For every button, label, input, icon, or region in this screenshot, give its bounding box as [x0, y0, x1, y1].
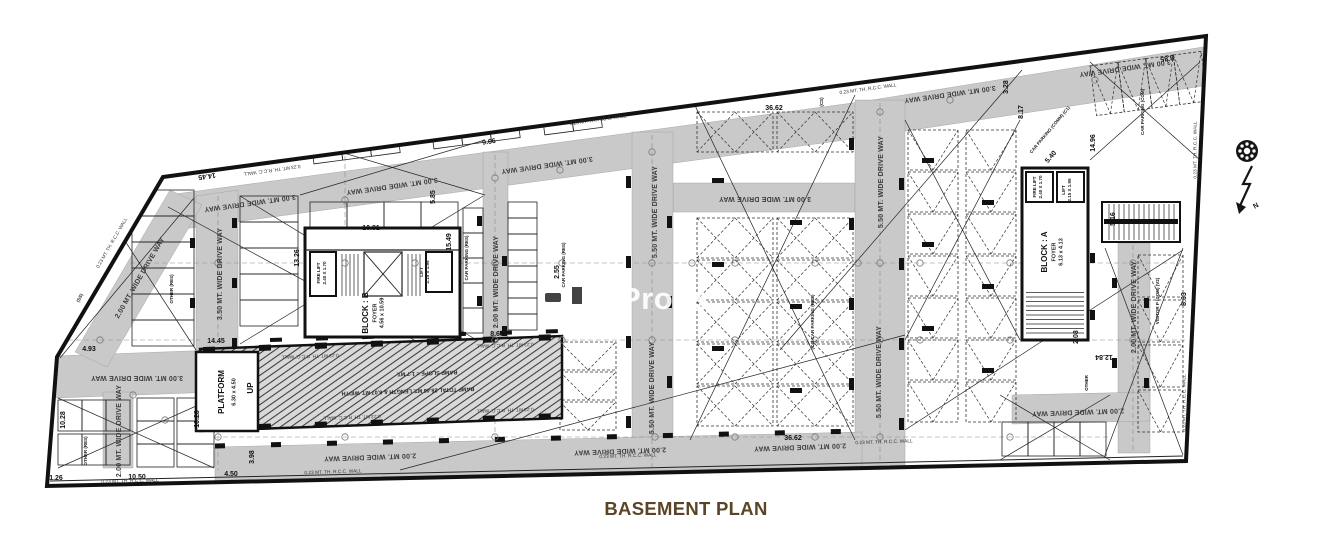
- plan-label: 2.00 MT. WIDE DRIVE WAY: [1131, 261, 1138, 353]
- plan-label: 2.40 X 1.70: [1038, 175, 1043, 199]
- plan-label: 13.26: [294, 249, 301, 267]
- plan-label: FIRE LIFT: [1032, 176, 1037, 197]
- basement-plan-drawing: 14.4514.454.931.2610.2810.2810.504.503.9…: [0, 0, 1336, 559]
- plan-label: 8.17: [1018, 105, 1025, 119]
- basement-plan-screenshot: 14.4514.454.931.2610.2810.2810.504.503.9…: [0, 0, 1336, 559]
- plan-title: BASEMENT PLAN: [586, 498, 786, 520]
- plan-label: 8.66: [490, 331, 504, 338]
- plan-label: BLOCK : B: [361, 292, 370, 334]
- plan-label: 3.28: [1003, 80, 1010, 94]
- plan-label: 2.40 X 1.70: [322, 261, 327, 285]
- drive-way-band: [1012, 392, 1150, 424]
- plan-label: 12.84: [1095, 353, 1113, 360]
- plan-label: OTHER: [1084, 374, 1089, 391]
- plan-label: 5.50 MT. WIDE DRIVE WAY: [878, 136, 885, 228]
- plan-label: 15.49: [446, 233, 453, 251]
- plan-label: 10.81: [362, 225, 380, 232]
- plan-label: 5.50 MT. WIDE DRIVE WAY: [652, 166, 659, 258]
- plan-label: 10.28: [60, 411, 67, 429]
- plan-label: 2.55: [554, 265, 561, 279]
- plan-label: 4.56 x 10.59: [379, 298, 385, 329]
- north-label: N: [1252, 202, 1260, 211]
- plan-label: 2.15 X 1.95: [425, 260, 430, 284]
- plan-label: 8.63: [1181, 292, 1188, 306]
- plan-label: OTHER (RES): [83, 436, 88, 466]
- plan-label: 36.62: [765, 105, 783, 112]
- plan-label: CAR PARKING (RES): [464, 235, 469, 280]
- plan-label: 0.23 MT. TH. R.C.C. WALL: [1192, 121, 1198, 179]
- plan-label: CAR PARKING (COM): [1140, 88, 1145, 135]
- plan-label: (CS): [819, 97, 824, 107]
- plan-label: LIFT: [1061, 185, 1066, 195]
- plan-label: 6.13 x 4.13: [1058, 238, 1064, 266]
- plan-label: 6.30 x 4.50: [231, 378, 237, 406]
- plan-label: 36.62: [784, 435, 802, 442]
- plan-label: FIRE LIFT: [316, 262, 321, 283]
- plan-label: FOYER: [1051, 243, 1057, 262]
- plan-label: (SS): [76, 292, 85, 303]
- plan-label: 0.23 MT. TH. R.C.C. WALL: [1181, 374, 1187, 432]
- plan-label: 3.98: [249, 450, 256, 464]
- plan-label: CAR PARKING (RES): [561, 242, 566, 287]
- plan-label: 2.00 MT. WIDE DRIVE WAY: [493, 236, 500, 328]
- plan-label: 3.50 MT. WIDE DRIVE WAY: [217, 228, 224, 320]
- plan-label: 14.96: [1090, 134, 1097, 152]
- plan-label: VISITOR P (COM) (V2): [1155, 277, 1160, 324]
- plan-label: LIFT: [419, 267, 424, 277]
- plan-label: 14.45: [207, 338, 225, 345]
- plan-label: BLOCK : A: [1040, 231, 1049, 272]
- plan-label: 2.00 MT. WIDE DRIVE WAY: [116, 385, 123, 477]
- svg-text:Props: Props: [620, 281, 710, 316]
- plan-label: FOYER: [372, 304, 378, 323]
- plan-label: 3.00 MT. WIDE DRIVE WAY: [719, 195, 811, 202]
- plan-label: 5.16: [1110, 212, 1117, 226]
- plan-label: 5.50 MT. WIDE DRIVE WAY: [649, 342, 656, 434]
- plan-label: 4.50: [224, 471, 238, 478]
- plan-label: 5.50 MT. WIDE DRIVE WAY: [876, 326, 883, 418]
- drive-way-band: [55, 350, 216, 398]
- plan-label: 10.28: [194, 410, 201, 428]
- plan-label: PLATFORM: [217, 370, 226, 414]
- plan-label: 2.08: [1073, 330, 1080, 344]
- plan-label: 4.93: [82, 346, 96, 353]
- plan-label: 5.85: [430, 190, 437, 204]
- plan-label: UP: [246, 382, 255, 394]
- plan-label: 1.26: [49, 475, 63, 482]
- plan-label: OTHER (RES): [169, 274, 174, 304]
- plan-label: 3.00 MT. WIDE DRIVE WAY: [91, 374, 183, 381]
- plan-label: (C4) CAR PARKING (RES): [810, 294, 815, 349]
- plan-label: 2.15 X 1.95: [1067, 178, 1072, 202]
